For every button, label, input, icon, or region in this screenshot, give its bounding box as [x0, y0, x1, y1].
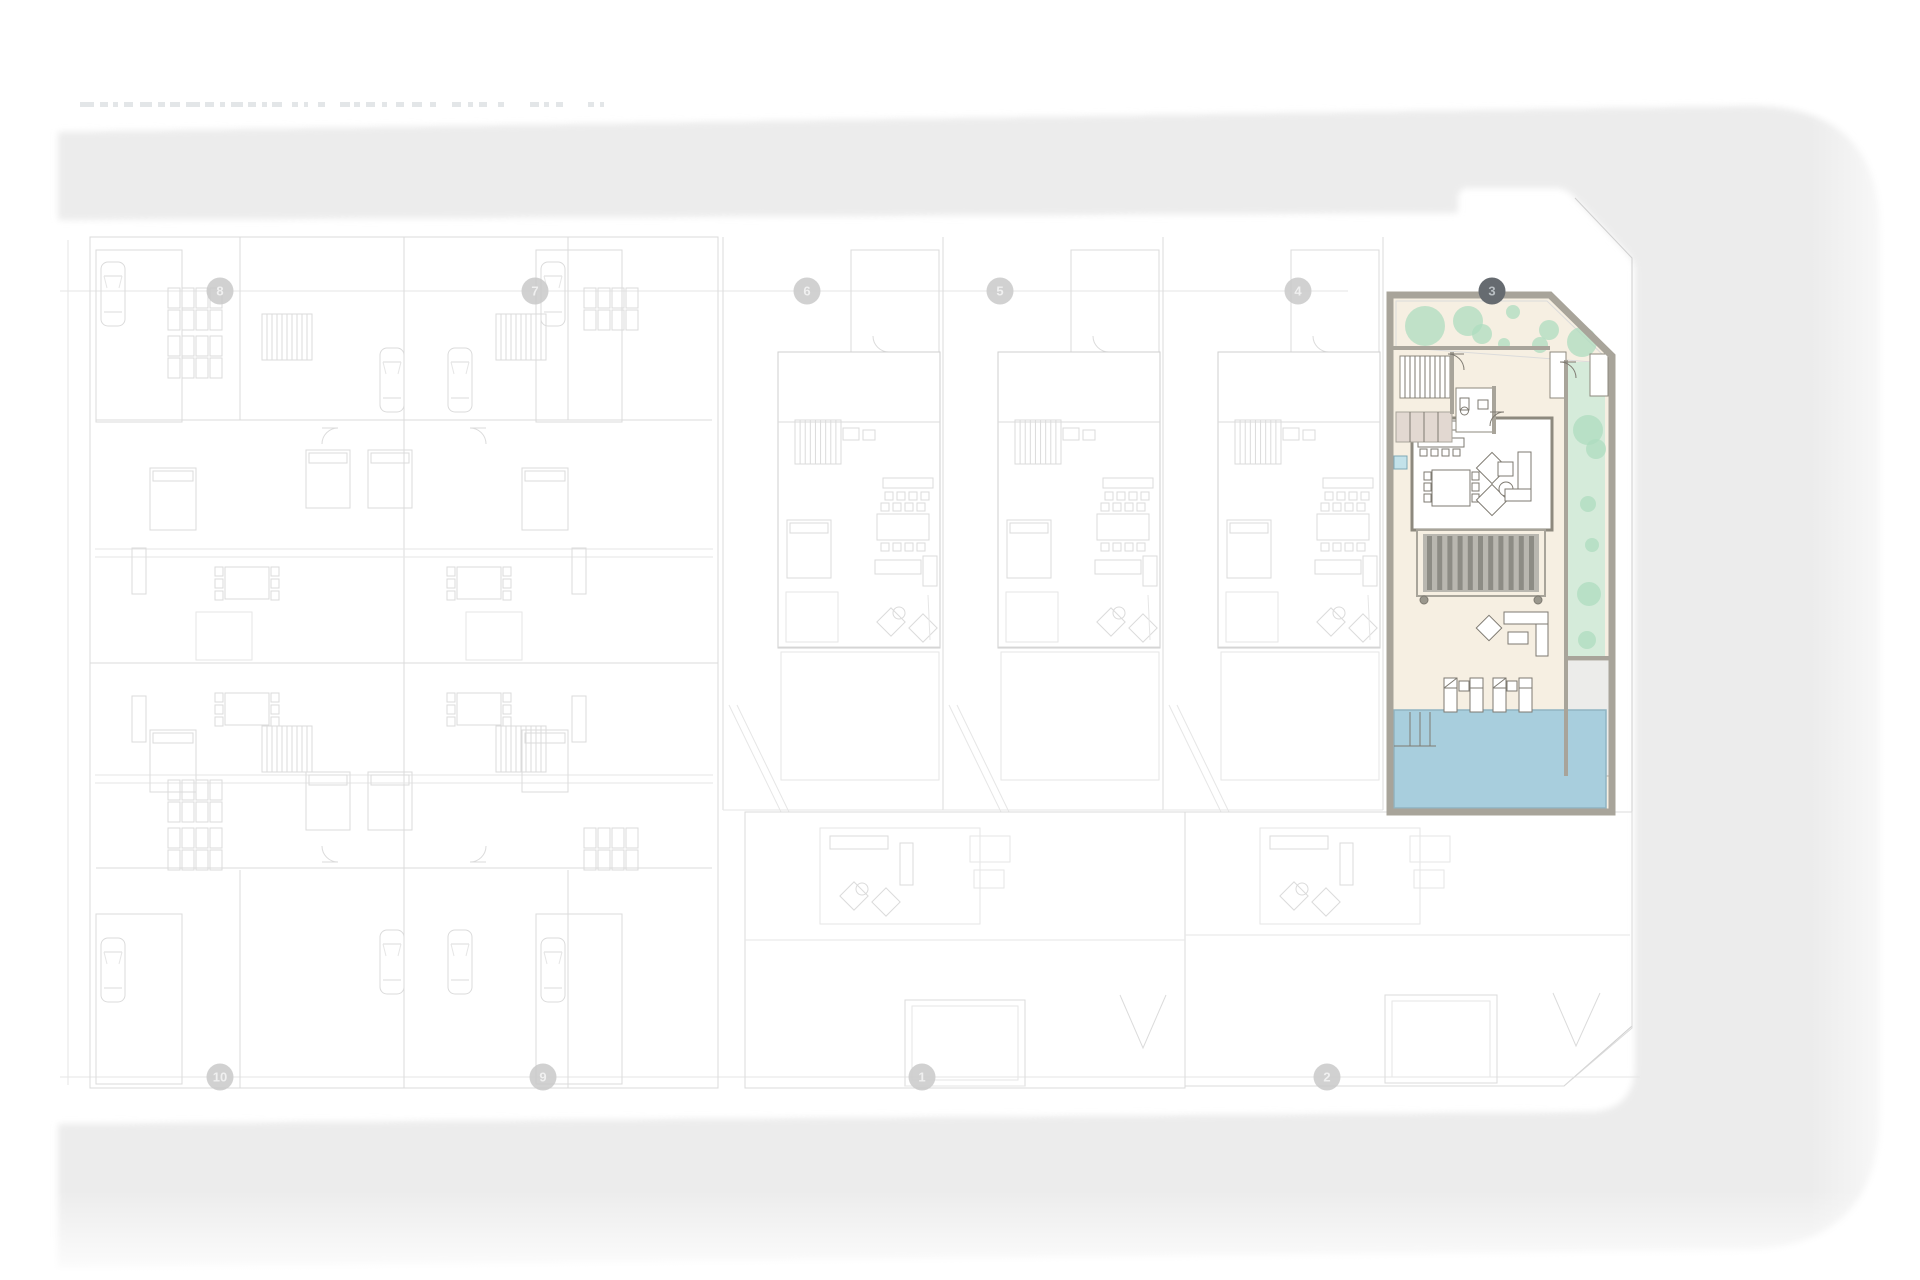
garden-bush — [1405, 306, 1445, 346]
closet — [1550, 352, 1566, 398]
grid-marker-label: 6 — [803, 284, 810, 299]
grid-marker-label: 5 — [996, 284, 1003, 299]
swimming-pool — [1394, 710, 1606, 808]
grid-marker-4[interactable]: 4 — [1285, 278, 1312, 305]
site-plan-svg: 87654310912 — [0, 0, 1920, 1280]
grid-marker-label: 8 — [216, 284, 223, 299]
grid-marker-6[interactable]: 6 — [794, 278, 821, 305]
garden-bush — [1567, 327, 1597, 357]
grid-marker-label: 1 — [918, 1070, 925, 1085]
cropped-title-fragment — [80, 102, 604, 107]
grid-marker-label: 4 — [1294, 284, 1302, 299]
grid-markers: 87654310912 — [207, 278, 1506, 1091]
garden-bush — [1539, 320, 1559, 340]
site-plan-canvas: 87654310912 — [0, 0, 1920, 1280]
outdoor-shower — [1394, 456, 1407, 469]
grid-marker-1[interactable]: 1 — [909, 1064, 936, 1091]
grid-marker-label: 10 — [213, 1070, 227, 1085]
garden-bush — [1506, 305, 1520, 319]
grid-marker-5[interactable]: 5 — [987, 278, 1014, 305]
grid-marker-10[interactable]: 10 — [207, 1064, 234, 1091]
grid-marker-9[interactable]: 9 — [530, 1064, 557, 1091]
grid-marker-label: 9 — [539, 1070, 546, 1085]
garden-bush — [1577, 582, 1601, 606]
highlighted-unit[interactable] — [1390, 295, 1612, 812]
garden-bush — [1472, 324, 1492, 344]
closet — [1590, 354, 1608, 396]
grid-marker-label: 3 — [1488, 284, 1495, 299]
garden-bush — [1578, 631, 1596, 649]
garden-bush — [1585, 538, 1599, 552]
garden-bush — [1586, 439, 1606, 459]
garden-bush — [1580, 496, 1596, 512]
grid-marker-2[interactable]: 2 — [1314, 1064, 1341, 1091]
grid-marker-3[interactable]: 3 — [1479, 278, 1506, 305]
grid-marker-label: 2 — [1323, 1070, 1330, 1085]
grid-marker-8[interactable]: 8 — [207, 278, 234, 305]
grid-marker-label: 7 — [531, 284, 538, 299]
garden-bush — [1532, 337, 1548, 353]
grid-marker-7[interactable]: 7 — [522, 278, 549, 305]
